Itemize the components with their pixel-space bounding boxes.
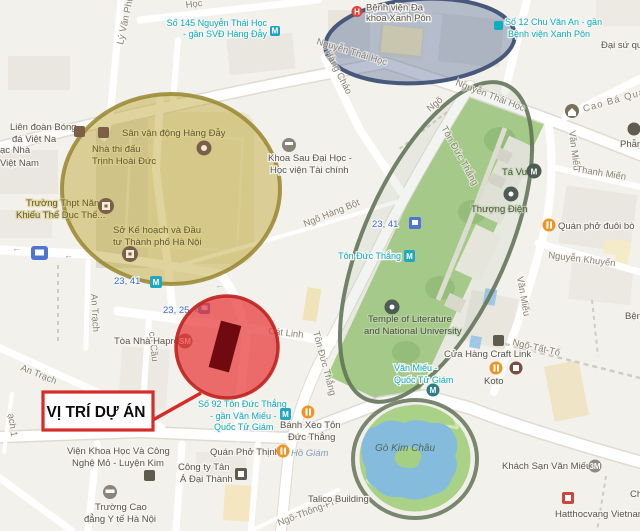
svg-text:Đức Thắng: Đức Thắng (288, 432, 335, 443)
svg-text:đẳng Y tế Hà Nội: đẳng Y tế Hà Nội (84, 513, 156, 525)
svg-text:Nhà thi đấu: Nhà thi đấu (92, 144, 141, 155)
svg-text:Trịnh Hoài Đức: Trịnh Hoài Đức (92, 156, 156, 167)
svg-text:Quốc Tử Giám: Quốc Tử Giám (214, 422, 273, 432)
svg-text:Số 92 Tôn Đức Thắng: Số 92 Tôn Đức Thắng (198, 399, 287, 409)
svg-text:Ch: Ch (630, 489, 640, 500)
svg-text:Quán phở đuôi bò: Quán phở đuôi bò (558, 221, 634, 232)
svg-text:Quán Phở Thịnh: Quán Phở Thịnh (210, 447, 280, 458)
svg-text:←: ← (215, 280, 224, 290)
svg-text:Quốc Tử Giám: Quốc Tử Giám (394, 375, 453, 385)
svg-text:Số 145 Nguyễn Thái Học: Số 145 Nguyễn Thái Học (167, 18, 268, 28)
svg-text:Viện Khoa Học Và Công: Viện Khoa Học Và Công (67, 446, 170, 457)
svg-text:Công ty Tân: Công ty Tân (178, 462, 230, 473)
svg-text:ạc Nhà: ạc Nhà (0, 145, 31, 156)
svg-text:Bệnh v: Bệnh v (625, 311, 640, 322)
svg-text:Khiếu Thể Dục Thể...: Khiếu Thể Dục Thể... (16, 210, 105, 221)
svg-text:Việt Nam: Việt Nam (0, 158, 39, 169)
svg-text:Gò Kim Châu: Gò Kim Châu (375, 443, 435, 454)
svg-text:Temple of Literature: Temple of Literature (368, 314, 452, 325)
svg-text:đá Việt Na: đá Việt Na (12, 134, 57, 145)
svg-text:- gần Văn Miếu -: - gần Văn Miếu - (210, 411, 277, 421)
svg-text:H: H (354, 8, 360, 17)
svg-text:M: M (430, 386, 437, 395)
svg-text:Thượng Điện: Thượng Điện (471, 204, 527, 215)
svg-text:Tá Vu: Tá Vu (502, 167, 527, 178)
svg-text:Nghệ Mỏ - Luyện Kim: Nghệ Mỏ - Luyện Kim (72, 458, 164, 469)
svg-text:M: M (406, 252, 413, 261)
svg-text:Tôn Đức Thắng: Tôn Đức Thắng (338, 251, 401, 261)
svg-text:23, 41: 23, 41 (372, 219, 398, 230)
svg-text:- gần SVĐ Hàng Đẫy: - gần SVĐ Hàng Đẫy (183, 29, 268, 39)
svg-text:M: M (272, 27, 279, 36)
svg-text:M: M (282, 410, 289, 419)
svg-text:Học viện Tài chính: Học viện Tài chính (270, 165, 349, 176)
svg-text:←: ← (12, 243, 21, 253)
svg-text:Bệnh viện Xanh Pôn: Bệnh viện Xanh Pôn (508, 29, 590, 39)
svg-text:Bánh Xèo Tôn: Bánh Xèo Tôn (280, 420, 341, 431)
svg-text:3M: 3M (589, 462, 600, 471)
svg-text:VỊ TRÍ DỰ ÁN: VỊ TRÍ DỰ ÁN (47, 404, 146, 421)
svg-text:Sân vận động Hàng Đẫy: Sân vận động Hàng Đẫy (122, 128, 226, 139)
svg-text:Trường Cao: Trường Cao (95, 502, 147, 513)
svg-text:Khách Sạn Văn Miếu: Khách Sạn Văn Miếu (502, 461, 591, 472)
svg-text:Hồ Giám: Hồ Giám (291, 448, 329, 459)
svg-text:Koto: Koto (484, 376, 504, 387)
svg-text:Trường Thpt Năng: Trường Thpt Năng (26, 198, 105, 209)
svg-text:Tòa Nhà Hapro: Tòa Nhà Hapro (114, 336, 179, 347)
svg-text:Hatthocvang Vietnam: Hatthocvang Vietnam (555, 509, 640, 520)
svg-text:Số 12 Chu Văn An - gần: Số 12 Chu Văn An - gần (505, 17, 602, 27)
svg-text:and National University: and National University (364, 326, 462, 337)
svg-text:Sở Kế hoạch và Đầu: Sở Kế hoạch và Đầu (113, 225, 201, 236)
svg-text:tư Thành phố Hà Nội: tư Thành phố Hà Nội (113, 237, 202, 248)
svg-text:23, 41: 23, 41 (114, 276, 140, 287)
svg-text:Văn Miếu -: Văn Miếu - (394, 363, 438, 373)
svg-text:Phẫn: Phẫn (620, 139, 640, 150)
svg-text:Khoa Sau Đại Học -: Khoa Sau Đại Học - (268, 153, 352, 164)
svg-text:khoa Xanh Pôn: khoa Xanh Pôn (366, 13, 431, 24)
svg-text:Bệnh viện Đa: Bệnh viện Đa (366, 3, 424, 14)
svg-text:Á Đại Thành: Á Đại Thành (180, 474, 233, 485)
svg-text:Liên đoàn Bóng: Liên đoàn Bóng (10, 122, 77, 133)
svg-text:←: ← (64, 250, 73, 260)
svg-text:M: M (153, 278, 160, 287)
svg-text:An Trạch: An Trạch (88, 294, 101, 333)
svg-text:M: M (531, 168, 538, 177)
svg-text:Cửa Hàng Craft Link: Cửa Hàng Craft Link (444, 349, 531, 360)
svg-text:Đại sứ qu: Đại sứ qu (601, 40, 640, 51)
svg-text:Talico Building: Talico Building (308, 494, 369, 505)
